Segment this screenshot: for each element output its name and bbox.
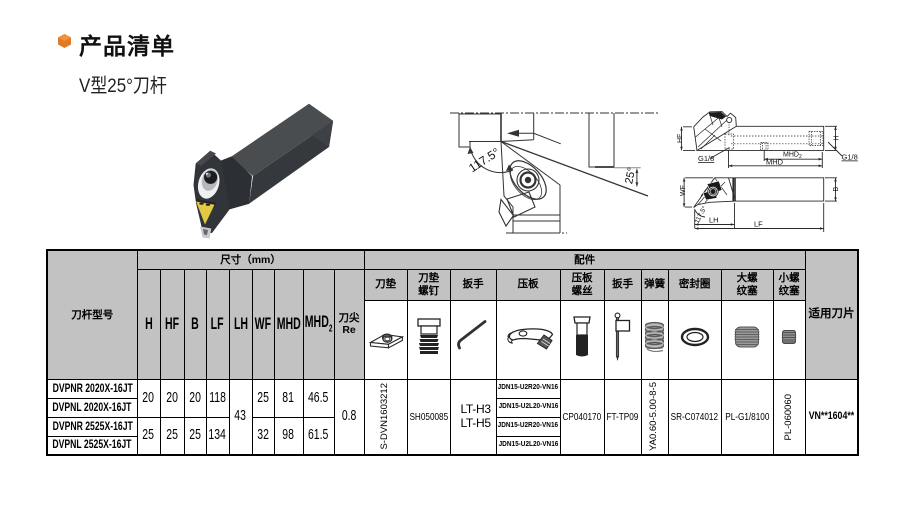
svg-text:117.5°: 117.5° xyxy=(466,145,502,175)
svg-text:MHD: MHD xyxy=(766,157,784,166)
svg-text:LH: LH xyxy=(709,216,719,225)
svg-text:B: B xyxy=(833,187,840,192)
svg-text:25°: 25° xyxy=(623,166,638,185)
svg-text:G1/8: G1/8 xyxy=(842,153,858,162)
svg-text:117.5°: 117.5° xyxy=(693,204,709,224)
svg-text:MHD2: MHD2 xyxy=(783,152,802,161)
svg-text:G1/8: G1/8 xyxy=(698,154,714,163)
svg-text:LF: LF xyxy=(754,220,763,229)
svg-text:WF: WF xyxy=(680,185,687,196)
svg-text:HF: HF xyxy=(677,134,684,143)
svg-text:H: H xyxy=(834,135,841,140)
